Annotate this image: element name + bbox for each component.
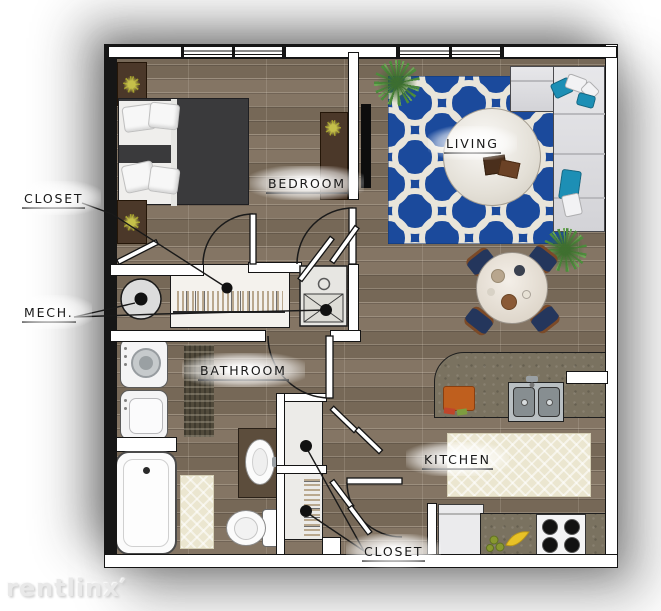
label-bedroom: BEDROOM [266, 176, 348, 194]
label-kitchen: KITCHEN [422, 452, 493, 470]
label-living: LIVING [444, 136, 501, 154]
floorplan-canvas: CLOSET BEDROOM LIVING MECH. BATHROOM KIT… [0, 0, 661, 611]
water-heater-icon [121, 279, 161, 319]
label-bathroom: BATHROOM [198, 363, 289, 381]
label-mech: MECH. [22, 305, 76, 323]
label-closet-top: CLOSET [22, 191, 85, 209]
plan-linework [0, 0, 661, 611]
rentlinx-watermark: rentlinx′ [6, 574, 127, 602]
label-closet-bottom: CLOSET [362, 544, 425, 562]
bananas-icon [506, 532, 529, 546]
